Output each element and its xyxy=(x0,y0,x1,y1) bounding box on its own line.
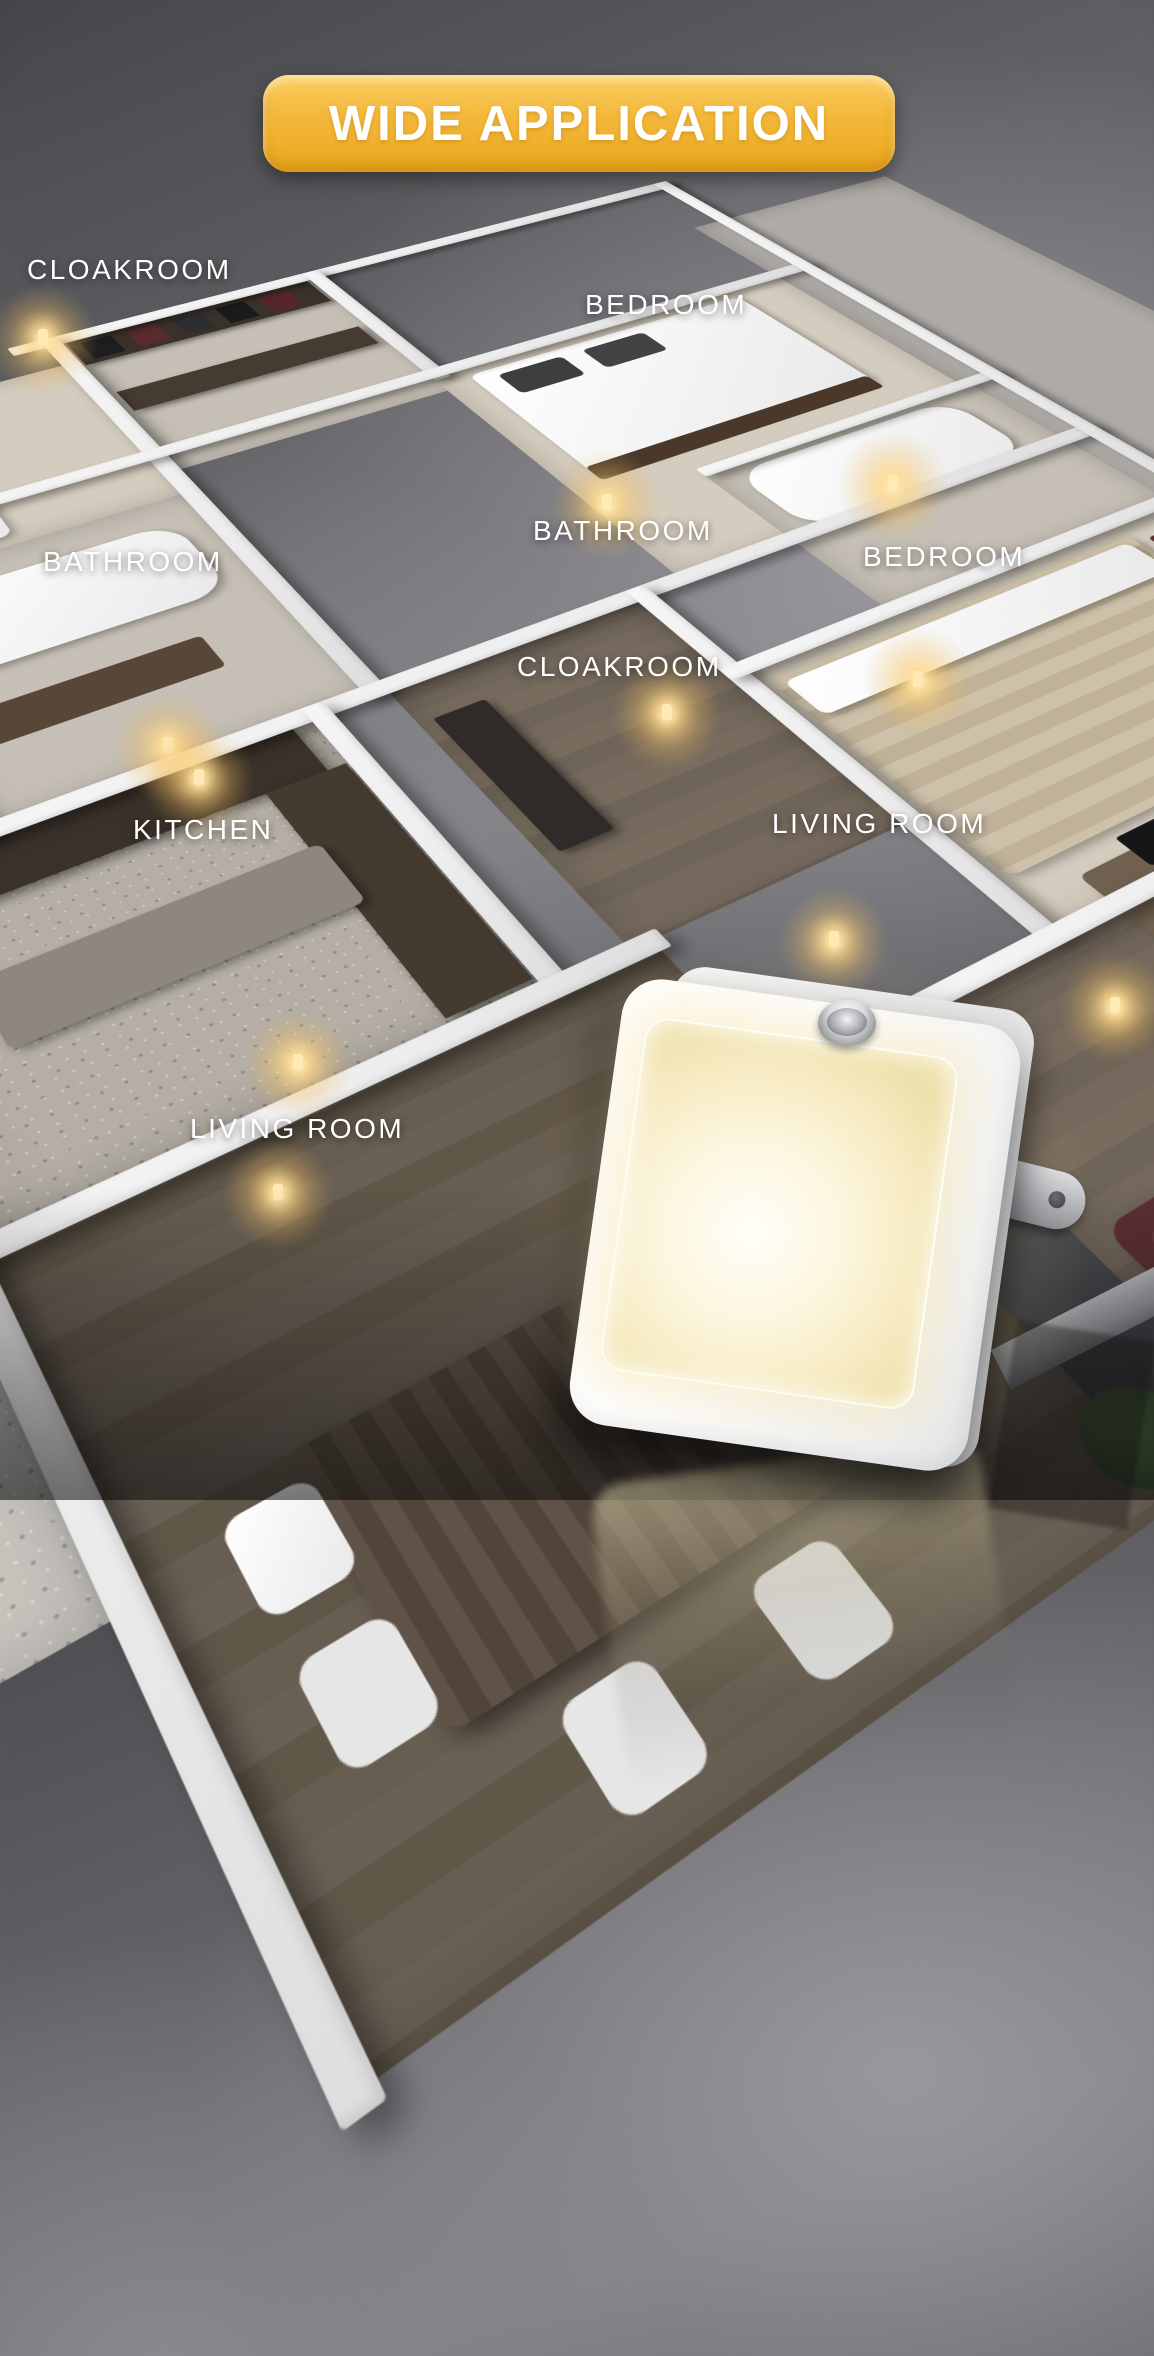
night-light-product xyxy=(578,972,1048,1487)
banner-title: WIDE APPLICATION xyxy=(329,96,829,152)
room-label: KITCHEN xyxy=(133,814,273,846)
room-label: CLOAKROOM xyxy=(27,254,232,286)
room-label: BATHROOM xyxy=(43,546,223,578)
prong-hole xyxy=(1047,1189,1068,1210)
room-label: LIVING ROOM xyxy=(772,808,986,840)
room-label: BEDROOM xyxy=(585,289,747,321)
knob-dial-face xyxy=(827,1008,867,1036)
product-marketing-image: { "banner": { "label": "WIDE APPLICATION… xyxy=(0,0,1154,1500)
lamp-floor-reflection xyxy=(588,1432,1019,1794)
room-label: LIVING ROOM xyxy=(190,1113,404,1145)
room-label: BEDROOM xyxy=(863,541,1025,573)
wide-application-banner: WIDE APPLICATION xyxy=(263,75,895,172)
light-panel xyxy=(598,1015,960,1412)
lamp-body xyxy=(565,974,1026,1476)
room-label: CLOAKROOM xyxy=(517,651,722,683)
room-label: BATHROOM xyxy=(533,515,713,547)
brightness-knob xyxy=(818,1000,876,1046)
